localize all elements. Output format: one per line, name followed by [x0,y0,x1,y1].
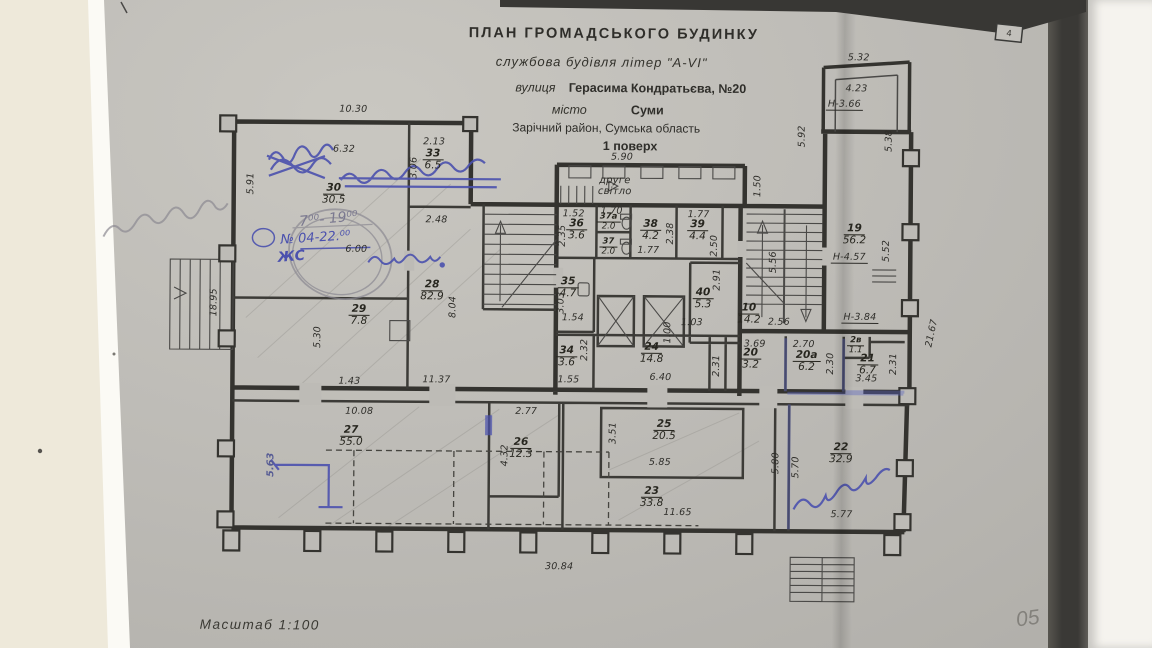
room-area: 5.3 [693,299,714,310]
height-note: Н-3.66 [826,99,863,111]
dimension-label: 30.84 [545,561,573,572]
room-label-10: 1014.2 [737,302,761,325]
room-label-37: 372.0 [599,237,617,256]
room-area: 7.8 [348,316,369,327]
dimension-label: 6.00 [345,244,367,255]
dimension-label: 2.31 [711,355,722,377]
plan-subtitle: службова будівля літер "А-VI" [496,54,708,70]
dimension-label: 1.54 [562,312,584,323]
dimension-label: 1.00 [662,321,673,343]
room-area: 82.9 [420,291,443,302]
city-value: Суми [631,103,664,117]
dimension-label: 2.50 [709,235,720,257]
scanned-floor-plan-photo: ПЛАН ГРОМАДСЬКОГО БУДИНКУ службова будів… [0,0,1152,648]
room-label-23: 2333.8 [640,486,664,509]
dimension-label: 3.51 [607,422,618,444]
dimension-label: 5.80 [770,452,781,474]
dimension-label: 6.32 [333,144,355,155]
street-label: вулиця [515,80,555,94]
dimension-label: 5.77 [830,509,852,520]
dimension-label: 5.85 [649,457,671,468]
plan-title: ПЛАН ГРОМАДСЬКОГО БУДИНКУ [469,25,759,43]
dimension-label: 5.70 [790,456,801,478]
dimension-label: 2.56 [768,317,790,328]
dimension-label: 5.38 [884,130,895,152]
city-label: місто [552,103,587,117]
dimension-label: 5.90 [611,152,633,163]
page-corner-number: 4 [1006,28,1012,38]
height-note: Н-4.57 [831,252,868,264]
room-label-39: 394.4 [687,219,708,242]
dimension-label: 1.77 [637,245,659,256]
room-area: 2.0 [599,247,617,256]
room-area: 6.2 [793,362,821,373]
dimension-label: 5.32 [848,52,870,63]
room-area: 3.2 [740,359,761,370]
room-area: 6.5 [423,160,444,171]
room-area: 4.7 [558,288,579,299]
room-label-21: 216.7 [857,353,878,376]
room-area: 33.8 [640,498,663,509]
dimension-label: 3.06 [408,157,419,179]
room-label-28: 2882.9 [420,279,444,302]
room-area: 12.3 [509,449,532,460]
dimension-label: 1.43 [338,376,360,387]
paper-edge-shadow [1048,0,1088,648]
scale-label: Масштаб 1:100 [200,617,320,633]
room-label-22: 2232.9 [829,442,853,465]
dimension-label: 5.91 [245,173,256,195]
height-note: Н-3.84 [841,312,878,324]
room-label-27: 2755.0 [339,425,363,448]
room-area: 6.7 [857,365,878,376]
dimension-label: 2.30 [825,353,836,375]
dimension-label: 5.52 [881,240,892,262]
room-area: 3.6 [556,357,577,368]
room-label-20a: 20а6.2 [793,350,821,373]
district-line: Зарічний район, Сумська область [512,120,700,135]
dimension-label: 5.63 [265,453,276,477]
dimension-label: 2.32 [579,339,590,361]
room-label-35: 354.7 [558,276,579,299]
dimension-label: 1.55 [557,374,579,385]
room-area: 56.2 [843,235,866,246]
dimension-label: 5.30 [312,326,323,348]
room-label-36: 363.6 [566,218,587,241]
room-area: 55.0 [339,437,362,448]
room-area: 2.0 [597,222,621,231]
room-label-40: 405.3 [693,287,714,310]
room-label-33: 336.5 [423,148,444,171]
dimension-label: 10.08 [345,406,373,417]
room-area: 4.2 [640,231,661,242]
dimension-label: 2.31 [888,353,899,375]
room-area: 32.9 [829,454,852,465]
room-label-26: 2612.3 [509,437,533,460]
dimension-label: 11.65 [663,507,691,518]
second-light-label: друге світло [598,175,632,197]
room-label-25: 2520.5 [652,419,676,442]
dimension-label: 2.48 [426,214,448,225]
room-area: 4.4 [687,231,708,242]
room-area: 3.6 [566,230,587,241]
dimension-label: 8.04 [447,296,458,318]
street-value: Герасима Кондратьєва, №20 [569,81,747,96]
room-area: 14.2 [737,314,760,325]
handwriting-initials: ЖС [277,248,306,266]
room-area: 20.5 [652,431,675,442]
dimension-label: 2.13 [423,136,445,147]
dimension-label: 5.56 [768,251,779,273]
dimension-label: 2.77 [515,406,537,417]
dimension-label: 6.40 [649,372,671,383]
room-label-34: 343.6 [556,345,577,368]
room-area: 14.8 [640,354,663,365]
room-label-29: 297.8 [348,304,369,327]
room-label-19: 1956.2 [843,223,867,246]
walls-drawing [0,0,1152,648]
handwriting-corner-mark: 05 [1015,606,1041,633]
dimension-label: 4.23 [845,83,867,94]
dimension-label: 1.03 [681,317,703,328]
dimension-label: 1.50 [752,175,763,197]
room-label-38: 384.2 [640,219,661,242]
dimension-label: 10.30 [339,104,367,115]
dimension-label: 18.95 [208,288,219,316]
room-label-24: 2414.8 [640,342,664,365]
room-label-20: 203.2 [740,347,761,370]
room-label-37a: 37а2.0 [597,212,621,231]
room-area: 30.5 [322,195,345,206]
dimension-label: 5.92 [797,125,808,147]
room-label-30: 3030.5 [322,183,346,206]
dimension-label: 11.37 [422,374,450,385]
floor-plan: ПЛАН ГРОМАДСЬКОГО БУДИНКУ службова будів… [0,0,1152,648]
dimension-label: 2.38 [665,222,676,244]
background-paper-right [1088,0,1152,648]
